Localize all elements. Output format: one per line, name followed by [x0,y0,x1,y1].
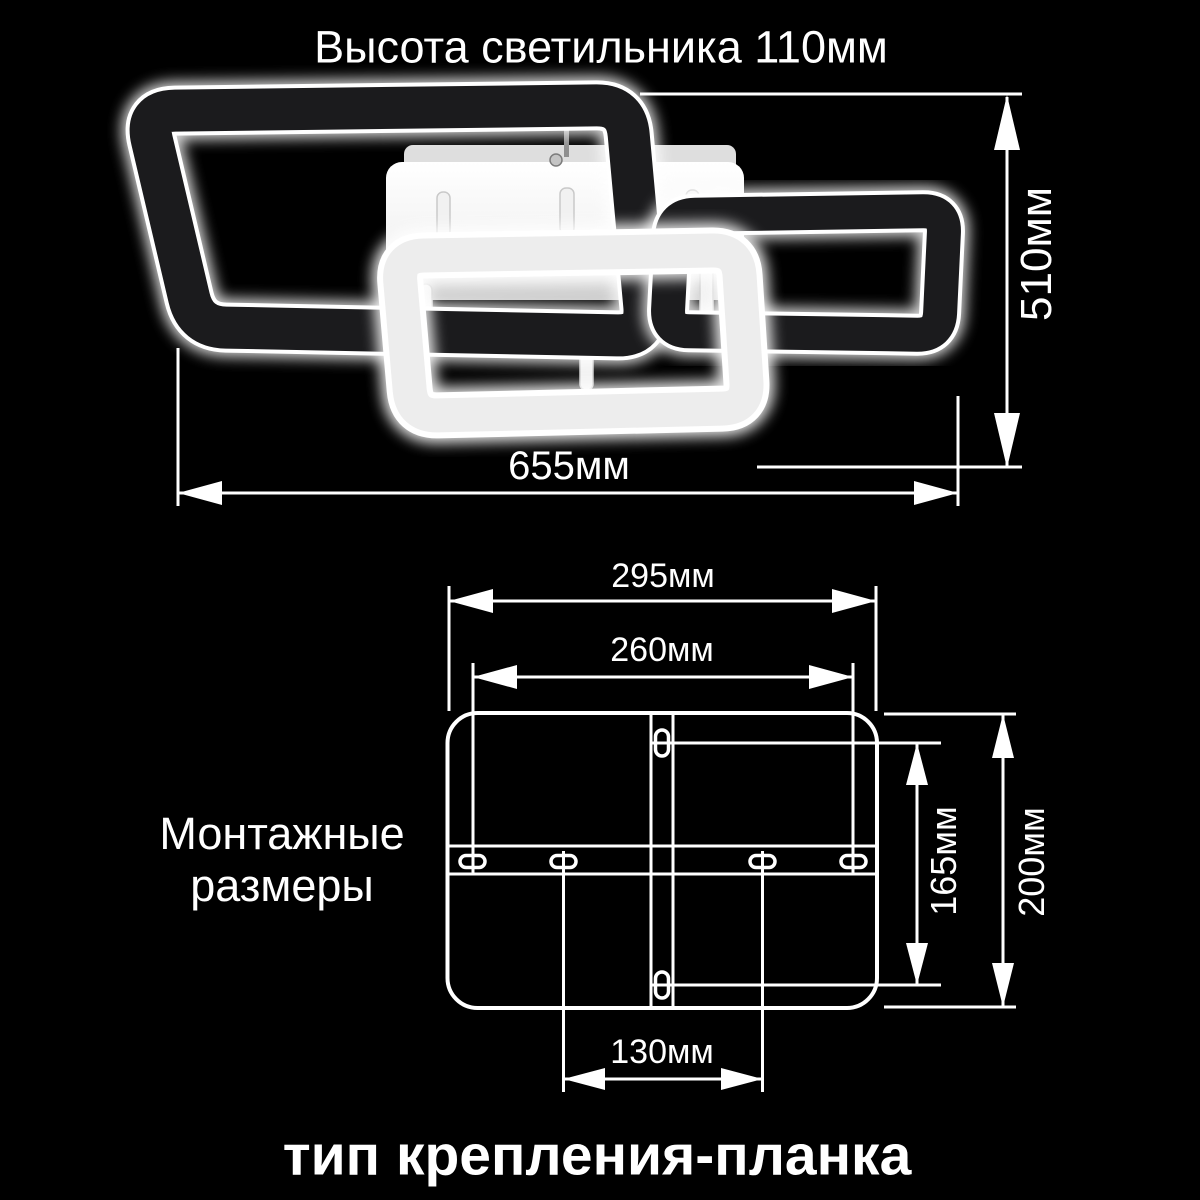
arrowhead-up [994,95,1020,150]
arrowhead-down [994,413,1020,468]
ceiling-light-photo [151,105,944,415]
mounting-dimensions-label: Монтажные размеры [159,808,404,912]
dim-label-width-655: 655мм [508,446,630,486]
arrowhead-right [832,589,876,613]
mounting-dimensions-label-line2: размеры [159,860,404,912]
dim-label-260: 260мм [610,633,713,667]
mounting-slots [460,730,866,998]
dim-label-130: 130мм [610,1035,713,1069]
arrowhead-left [178,481,222,505]
mount-type-caption: тип крепления-планка [283,1128,912,1185]
mounting-dimensions-label-line1: Монтажные [159,808,404,860]
arrowhead-left [473,665,517,689]
dim-label-165: 165мм [926,806,962,916]
product-dimension-diagram: Высота светильника 110мм 655мм 510мм 295… [0,0,1200,1200]
dim-label-200: 200мм [1014,807,1050,917]
arrowhead-left [564,1068,606,1090]
arrowhead-up [992,714,1014,758]
fixture-height-title: Высота светильника 110мм [314,25,888,70]
screw [550,154,562,166]
arrowhead-up [906,743,928,785]
dim-label-height-510: 510мм [1015,187,1059,321]
arrowhead-down [992,963,1014,1007]
dim-slot-span-260 [473,663,853,855]
diagram-linework [0,0,1200,1200]
arrowhead-right [809,665,853,689]
arrowhead-right [721,1068,763,1090]
arrowhead-left [449,589,493,613]
arrowhead-right [914,481,958,505]
dim-slot-height-165 [650,743,941,985]
dim-label-295: 295мм [611,559,714,593]
arrowhead-down [906,943,928,985]
